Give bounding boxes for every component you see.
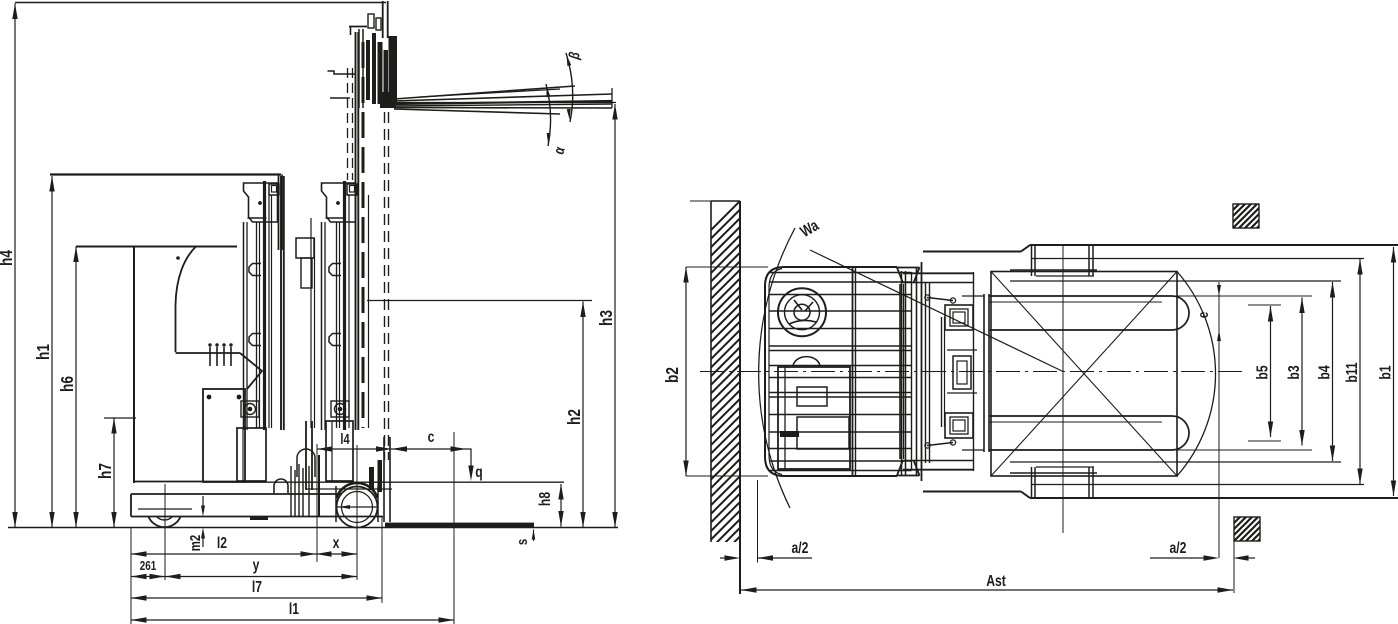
svg-text:l2: l2: [217, 534, 227, 552]
svg-text:e: e: [1194, 312, 1211, 318]
svg-text:y: y: [253, 556, 260, 574]
svg-text:l4: l4: [340, 430, 350, 447]
svg-text:b2: b2: [663, 367, 682, 383]
svg-text:261: 261: [140, 560, 157, 574]
svg-text:m2: m2: [186, 535, 203, 551]
svg-text:h4: h4: [0, 250, 17, 266]
svg-text:h8: h8: [536, 492, 554, 506]
svg-text:a/2: a/2: [792, 539, 809, 557]
svg-text:b3: b3: [1285, 365, 1303, 379]
svg-text:q: q: [475, 463, 482, 481]
svg-text:x: x: [333, 534, 340, 552]
svg-text:h6: h6: [58, 376, 77, 392]
svg-text:s: s: [513, 539, 530, 545]
svg-text:b11: b11: [1343, 362, 1361, 382]
svg-text:h1: h1: [34, 344, 53, 360]
svg-text:Ast: Ast: [986, 572, 1006, 590]
svg-text:h2: h2: [565, 409, 584, 425]
svg-text:c: c: [428, 428, 435, 446]
svg-text:h3: h3: [597, 310, 616, 326]
svg-text:l1: l1: [289, 600, 299, 618]
svg-text:b5: b5: [1254, 365, 1272, 379]
svg-text:b4: b4: [1316, 365, 1334, 379]
svg-text:a/2: a/2: [1170, 539, 1187, 557]
svg-text:l7: l7: [252, 578, 262, 596]
svg-text:b1: b1: [1377, 365, 1395, 379]
svg-text:h7: h7: [96, 463, 115, 479]
